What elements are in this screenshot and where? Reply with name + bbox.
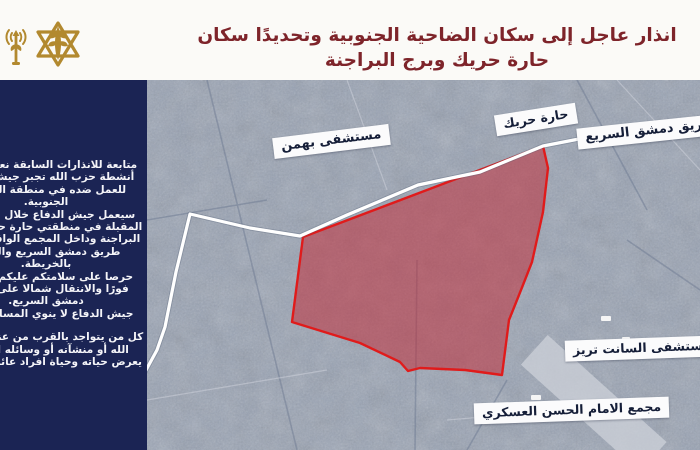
warning-line: للعمل ضده في منطقة الضاحية (0, 184, 144, 196)
warning-line: الجنوبية. (0, 196, 144, 208)
header: انذار عاجل إلى سكان الضاحية الجنوبية وتح… (0, 0, 700, 80)
warning-line: سيعمل جيش الدفاع خلال الساعات (0, 209, 144, 221)
warning-line: جيش الدفاع لا ينوي المساس بكم. (0, 308, 144, 320)
warning-map-graphic: انذار عاجل إلى سكان الضاحية الجنوبية وتح… (0, 0, 700, 450)
warning-line: كل من يتواجد بالقرب من عناصر حزب (0, 331, 144, 343)
warning-line: دمشق السريع. (0, 295, 144, 307)
warning-line: أنشطة حزب الله تجبر جيش الدفاع (0, 171, 144, 183)
warning-text: متابعة للانذارات السابقة نعود ونؤكد أنشط… (0, 159, 144, 369)
warning-line: البراجنة وداخل المجمع الواقع جنوبي (0, 233, 144, 245)
warning-line: المقبلة في منطقتي حارة حريك وبرج (0, 221, 144, 233)
warning-line: طريق دمشق السريع والمحدد (0, 246, 144, 258)
idf-insignia-icon (33, 20, 83, 67)
satellite-map: حارة حريك طريق دمشق السريع مستشفى بهمن م… (147, 80, 700, 450)
paragraph-gap (0, 320, 144, 331)
warning-line: حرصا على سلامتكم عليكم الخروج (0, 271, 144, 283)
page-title: انذار عاجل إلى سكان الضاحية الجنوبية وتح… (180, 24, 694, 74)
warning-text-panel: متابعة للانذارات السابقة نعود ونؤكد أنشط… (0, 80, 147, 450)
warning-line: بالخريطة. (0, 258, 144, 270)
logo-row (0, 0, 96, 80)
warning-line: الله أو منشآته أو وسائله القتالية (0, 344, 144, 356)
warning-line: يعرض حياته وحياة افراد عائلته للخطر (0, 356, 144, 368)
warning-line: فورًا والانتقال شمالا على طريق (0, 283, 144, 295)
warning-line: متابعة للانذارات السابقة نعود ونؤكد (0, 159, 144, 171)
broadcast-antenna-icon (1, 20, 31, 66)
